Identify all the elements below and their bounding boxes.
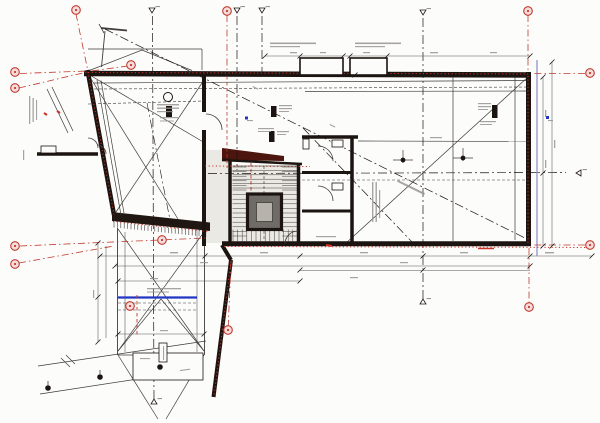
annotation-smudge	[478, 109, 488, 110]
grid-axis-marker-glyph	[75, 9, 77, 11]
skylight-box	[350, 58, 387, 75]
column-mark	[401, 158, 406, 163]
annotation-smudge	[279, 111, 289, 112]
annotation-smudge	[350, 277, 358, 278]
grid-axis-marker-glyph	[14, 245, 16, 247]
grid-axis-marker-glyph	[14, 87, 16, 89]
annotation-smudge	[170, 252, 178, 253]
skylight-box	[300, 58, 343, 75]
annotation-smudge	[376, 182, 377, 222]
floor-plan-page	[0, 0, 600, 423]
annotation-smudge	[260, 252, 268, 253]
annotation-smudge	[490, 52, 497, 53]
annotation-smudge	[372, 182, 373, 222]
site-post	[97, 374, 103, 380]
annotation-smudge	[400, 262, 408, 263]
grid-axis-marker-glyph	[129, 305, 131, 307]
annotation-smudge	[157, 111, 173, 112]
annotation-smudge	[478, 103, 491, 104]
annotation-smudge	[247, 120, 253, 121]
annotation-smudge	[545, 160, 546, 168]
annotation-smudge	[545, 110, 546, 117]
annotation-smudge	[36, 100, 37, 120]
site-post	[45, 385, 51, 391]
annotation-smudge	[277, 134, 286, 135]
section-marker-label	[241, 6, 246, 7]
section-marker-label	[583, 169, 588, 170]
annotation-smudge	[279, 105, 292, 106]
annotation-smudge	[93, 290, 94, 298]
section-marker-label	[266, 6, 271, 7]
annotation-smudge	[316, 236, 336, 237]
blue-point	[546, 116, 549, 119]
annotation-smudge	[157, 108, 179, 109]
annotation-smudge	[355, 43, 401, 45]
annotation-smudge	[320, 52, 326, 53]
annotation-smudge	[545, 252, 554, 253]
elevator-car	[257, 203, 273, 222]
fixture	[303, 139, 309, 149]
fixture	[332, 183, 343, 190]
annotation-smudge	[258, 128, 274, 129]
annotation-smudge	[430, 137, 442, 138]
annotation-smudge	[140, 358, 150, 359]
grid-axis-marker-glyph	[130, 64, 132, 66]
column-mark	[461, 156, 466, 161]
grid-axis-marker-glyph	[527, 10, 529, 12]
annotation-smudge	[160, 121, 174, 122]
annotation-smudge	[160, 330, 168, 331]
annotation-smudge	[480, 124, 492, 125]
site-post	[157, 364, 163, 370]
grid-axis-marker-glyph	[161, 239, 163, 241]
column-chip	[269, 131, 275, 142]
grid-axis-marker-glyph	[589, 244, 591, 246]
annotation-smudge	[277, 131, 289, 132]
grid-axis-marker-glyph	[226, 10, 228, 12]
annotation-smudge	[258, 131, 271, 132]
annotation-smudge	[554, 140, 555, 148]
annotation-smudge	[147, 292, 169, 293]
blue-point	[245, 117, 248, 120]
annotation-smudge	[29, 96, 30, 124]
site-structure	[133, 353, 203, 380]
annotation-smudge	[270, 46, 300, 47]
annotation-smudge	[290, 52, 297, 53]
column-chip	[492, 105, 498, 118]
annotation-smudge	[200, 262, 208, 263]
grid-axis-marker-glyph	[589, 72, 591, 74]
annotation-smudge	[163, 346, 164, 360]
annotation-smudge	[480, 121, 496, 122]
annotation-smudge	[363, 52, 370, 53]
grid-axis-marker-glyph	[14, 263, 16, 265]
annotation-smudge	[150, 278, 158, 279]
redsolid-line	[326, 245, 332, 246]
section-marker-label	[427, 298, 432, 299]
annotation-smudge	[23, 150, 24, 160]
annotation-smudge	[460, 252, 468, 253]
window	[41, 146, 56, 153]
column-chip	[271, 106, 277, 117]
annotation-smudge	[33, 98, 34, 122]
grid-axis-marker-glyph	[14, 71, 16, 73]
fixture	[332, 140, 343, 147]
annotation-smudge	[430, 52, 438, 53]
annotation-smudge	[270, 43, 316, 45]
annotation-smudge	[279, 108, 292, 109]
annotation-smudge	[360, 252, 368, 253]
section-marker-label	[156, 6, 161, 7]
annotation-smudge	[548, 120, 553, 121]
section-marker-label	[427, 8, 432, 9]
annotation-smudge	[157, 104, 179, 105]
annotation-smudge	[379, 190, 380, 218]
thin-line	[358, 141, 527, 142]
annotation-smudge	[160, 117, 178, 118]
annotation-smudge	[355, 46, 385, 47]
annotation-smudge	[147, 288, 181, 289]
annotation-smudge	[255, 170, 265, 171]
grid-axis-marker-glyph	[227, 329, 229, 331]
section-marker-label	[158, 398, 163, 399]
grid-axis-marker-glyph	[528, 306, 530, 308]
annotation-smudge	[478, 106, 491, 107]
floor-plan-canvas	[0, 0, 600, 423]
